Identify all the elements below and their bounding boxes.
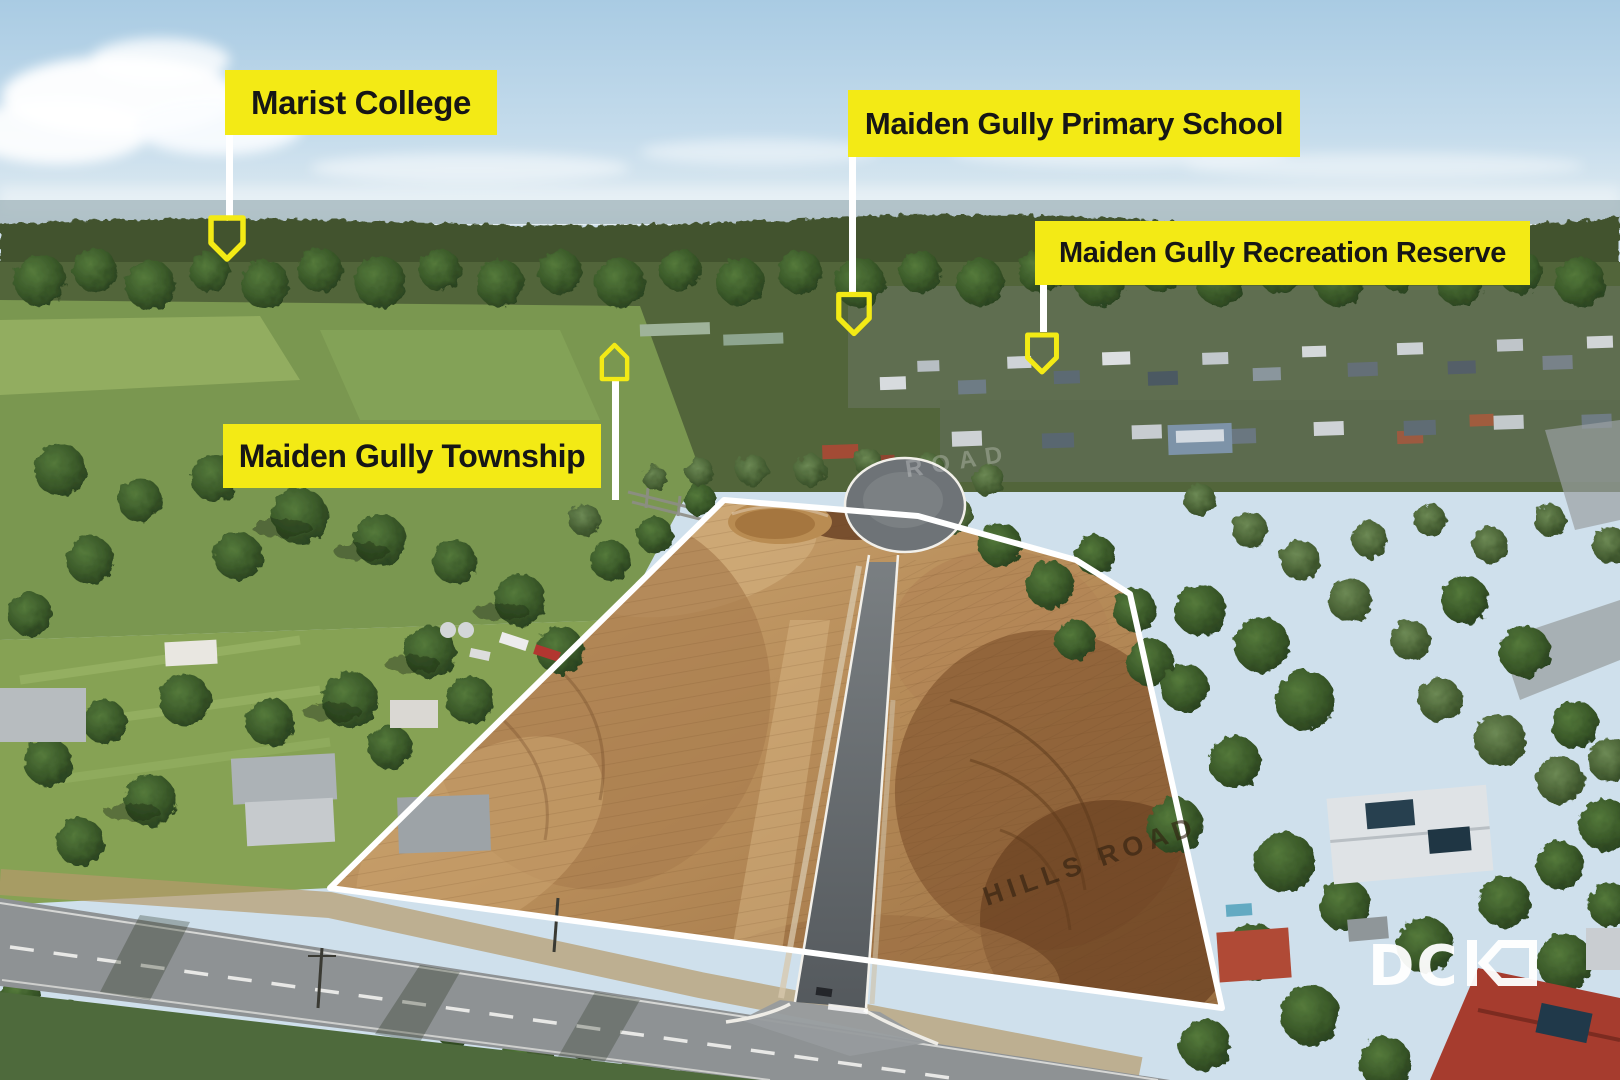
dck-logo-letters: DC — [1368, 936, 1460, 990]
map-pin-icon — [206, 214, 248, 263]
aerial-photo-page: HILLS ROAD ROAD Marist College Maiden Gu… — [0, 0, 1620, 1080]
connector-line — [849, 156, 856, 292]
map-pin-icon — [834, 290, 874, 338]
callout-primary-school: Maiden Gully Primary School — [848, 90, 1300, 157]
callout-label: Maiden Gully Primary School — [865, 106, 1283, 142]
callout-label: Marist College — [251, 84, 471, 122]
connector-line — [1040, 284, 1047, 332]
dck-logo: DC — [1368, 936, 1542, 990]
callout-township: Maiden Gully Township — [223, 424, 601, 488]
connector-line — [226, 133, 233, 216]
aerial-photo — [0, 0, 1620, 1080]
connector-line — [612, 380, 619, 500]
callout-label: Maiden Gully Township — [239, 438, 586, 475]
callout-recreation-reserve: Maiden Gully Recreation Reserve — [1035, 221, 1530, 285]
callout-label: Maiden Gully Recreation Reserve — [1059, 237, 1506, 270]
map-pin-icon — [1023, 330, 1061, 377]
dck-logo-k-arrow — [1483, 944, 1533, 982]
house-icon — [597, 340, 632, 383]
dck-logo-k-bar — [1467, 940, 1477, 986]
callout-marist-college: Marist College — [225, 70, 497, 135]
